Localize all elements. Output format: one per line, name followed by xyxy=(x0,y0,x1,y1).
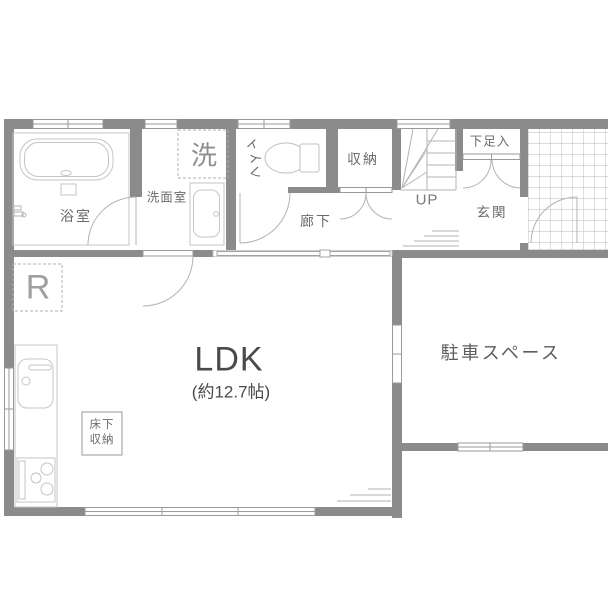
walls xyxy=(4,119,608,518)
shower-fixture xyxy=(14,206,26,217)
floor-plan: 浴室 洗 洗面室 ト イ レ 収納 廊下 UP 下足入 玄関 R 床下 収納 L… xyxy=(0,0,608,613)
stairs-up-label: UP xyxy=(416,192,439,209)
refrigerator-label: R xyxy=(26,269,51,308)
underfloor-storage-line2: 収納 xyxy=(90,433,115,448)
bathtub xyxy=(13,133,129,245)
hallway-label: 廊下 xyxy=(300,211,332,231)
entrance-porch-tiles xyxy=(528,129,608,250)
ldk-size-label: (約12.7帖) xyxy=(192,378,270,403)
windows xyxy=(5,120,524,516)
vanity-sink xyxy=(190,183,224,245)
window-midlines xyxy=(5,120,523,515)
washroom-label: 洗面室 xyxy=(147,187,188,206)
hallway-ldk-sliding-door xyxy=(213,250,392,257)
kitchen-counter xyxy=(15,345,57,507)
ldk-label: LDK xyxy=(194,341,263,380)
washing-machine-label: 洗 xyxy=(191,136,217,173)
floor-plan-drawing xyxy=(0,0,608,613)
toilet-fixture xyxy=(265,143,319,173)
entrance-label: 玄関 xyxy=(477,201,508,221)
shoe-cabinet-label: 下足入 xyxy=(470,131,511,150)
ldk-step-lines xyxy=(337,489,391,501)
entrance-step-lines xyxy=(403,231,459,246)
underfloor-storage-label: 床下 収納 xyxy=(90,418,115,448)
underfloor-storage-line1: 床下 xyxy=(90,418,115,433)
stairs xyxy=(401,129,456,190)
parking-label: 駐車スペース xyxy=(441,339,562,365)
bathroom-label: 浴室 xyxy=(60,206,92,226)
storage-label: 収納 xyxy=(347,149,379,169)
